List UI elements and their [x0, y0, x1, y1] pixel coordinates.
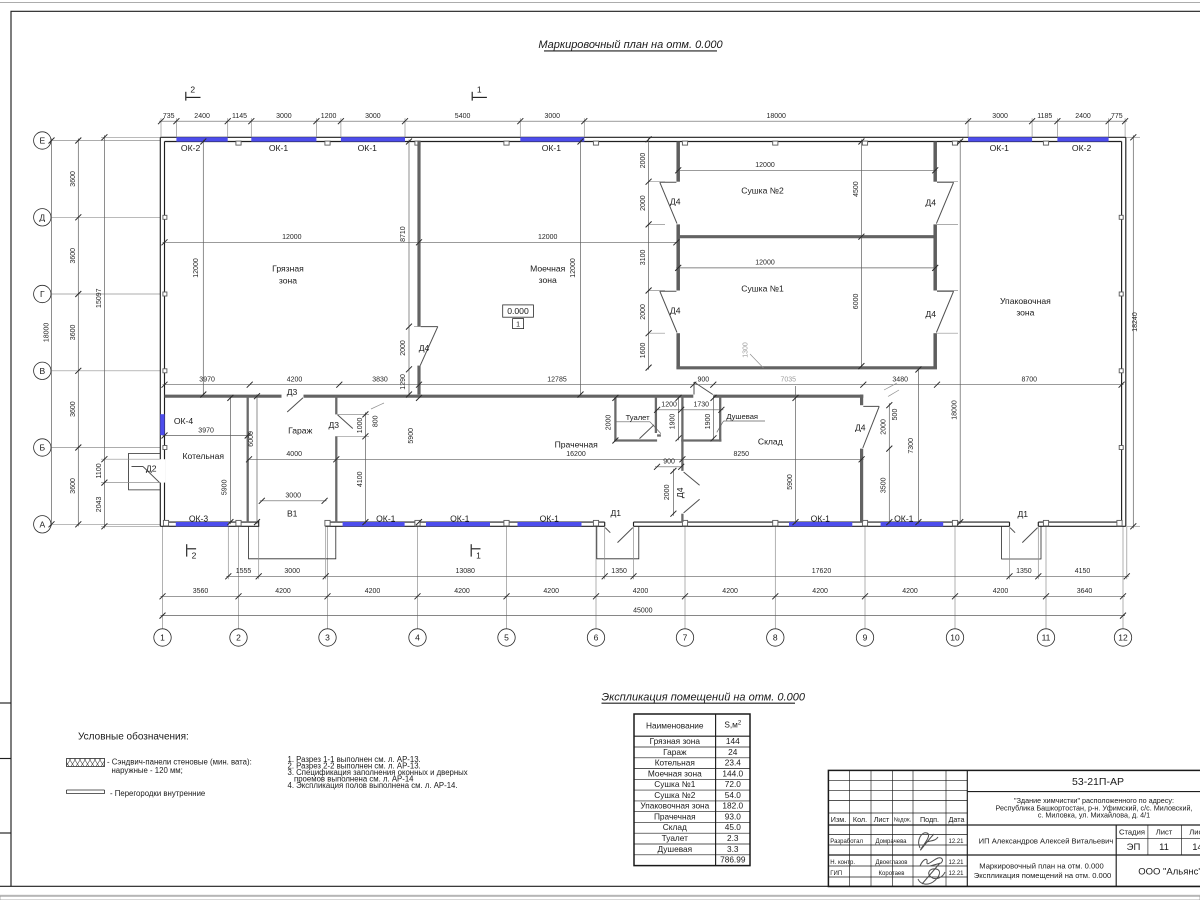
svg-text:182.0: 182.0: [722, 801, 743, 811]
svg-text:3830: 3830: [372, 377, 388, 384]
svg-text:Экспликация помещений на отм.: Экспликация помещений на отм. 0.000: [602, 692, 806, 704]
svg-text:Душевая: Душевая: [726, 412, 758, 421]
svg-text:2: 2: [192, 551, 197, 561]
svg-text:1100: 1100: [96, 463, 103, 478]
svg-text:Душевая: Душевая: [657, 844, 692, 854]
svg-text:4200: 4200: [812, 588, 828, 595]
svg-text:ОК-1: ОК-1: [894, 514, 914, 524]
svg-text:Подп.: Подп.: [920, 815, 939, 824]
svg-text:12.21: 12.21: [948, 860, 964, 866]
svg-text:3560: 3560: [193, 588, 209, 595]
svg-text:3100: 3100: [640, 250, 647, 266]
svg-text:ОК-4: ОК-4: [174, 416, 194, 426]
svg-text:Туалет: Туалет: [662, 833, 688, 843]
svg-text:Наименование: Наименование: [646, 721, 704, 731]
svg-text:ОК-1: ОК-1: [811, 514, 831, 524]
svg-text:144.0: 144.0: [722, 768, 743, 778]
svg-text:3970: 3970: [199, 377, 215, 384]
svg-text:2400: 2400: [194, 113, 210, 120]
svg-text:Д4: Д4: [925, 197, 936, 207]
svg-text:8700: 8700: [1022, 377, 1038, 384]
svg-text:6000: 6000: [248, 431, 255, 447]
svg-text:зона: зона: [539, 275, 557, 285]
svg-text:1: 1: [477, 85, 482, 95]
svg-text:Г: Г: [40, 289, 45, 299]
svg-text:8250: 8250: [734, 451, 750, 458]
svg-text:12000: 12000: [755, 162, 775, 169]
svg-text:4000: 4000: [286, 451, 302, 458]
svg-text:Д: Д: [39, 212, 45, 222]
svg-text:ГИП: ГИП: [830, 871, 842, 877]
svg-text:5900: 5900: [787, 474, 794, 490]
svg-text:ОК-1: ОК-1: [540, 514, 560, 524]
svg-text:Н. контр.: Н. контр.: [830, 860, 855, 866]
svg-text:4200: 4200: [287, 377, 303, 384]
svg-text:Лист: Лист: [874, 815, 890, 824]
svg-text:Разработал: Разработал: [830, 839, 863, 845]
svg-text:ИП Александров Алексей Виталье: ИП Александров Алексей Витальевич: [979, 836, 1114, 845]
svg-text:3640: 3640: [1077, 588, 1093, 595]
svg-text:зона: зона: [1016, 308, 1034, 318]
svg-text:9: 9: [863, 633, 868, 643]
svg-text:Коротаев: Коротаев: [879, 871, 905, 877]
svg-text:1350: 1350: [611, 568, 627, 575]
svg-text:Двоеглазов: Двоеглазов: [876, 860, 908, 866]
svg-text:1: 1: [516, 322, 520, 329]
svg-text:54.0: 54.0: [725, 790, 742, 800]
svg-text:93.0: 93.0: [725, 812, 742, 822]
svg-text:Д4: Д4: [670, 197, 681, 207]
svg-text:Д4: Д4: [670, 306, 681, 316]
svg-text:12000: 12000: [570, 258, 577, 278]
svg-text:Д4: Д4: [419, 343, 430, 353]
svg-text:1350: 1350: [1016, 568, 1032, 575]
svg-text:Д4: Д4: [675, 487, 685, 498]
svg-text:12000: 12000: [538, 234, 558, 241]
svg-text:11: 11: [1159, 842, 1169, 853]
svg-text:Дата: Дата: [949, 815, 965, 824]
svg-text:3000: 3000: [365, 113, 381, 120]
svg-text:5: 5: [504, 633, 509, 643]
svg-text:Д1: Д1: [1017, 509, 1028, 519]
svg-text:775: 775: [1111, 113, 1123, 120]
svg-text:16200: 16200: [566, 451, 586, 458]
svg-text:786.99: 786.99: [720, 855, 746, 865]
svg-text:- Перегородки внутренние: - Перегородки внутренние: [110, 789, 205, 798]
svg-text:Гараж: Гараж: [663, 747, 687, 757]
svg-text:Грязная зона: Грязная зона: [650, 736, 701, 746]
svg-text:2000: 2000: [640, 153, 647, 169]
svg-text:5900: 5900: [222, 479, 229, 495]
svg-text:1185: 1185: [1037, 113, 1052, 120]
svg-text:5400: 5400: [455, 113, 471, 120]
svg-text:Д4: Д4: [925, 309, 936, 319]
svg-text:12000: 12000: [755, 260, 775, 267]
svg-text:2043: 2043: [96, 497, 103, 513]
svg-text:6000: 6000: [853, 294, 860, 310]
svg-text:1555: 1555: [236, 568, 252, 575]
svg-text:Сушка №1: Сушка №1: [654, 779, 695, 789]
svg-text:1730: 1730: [694, 402, 710, 409]
svg-text:18000: 18000: [951, 400, 958, 420]
svg-text:2.3: 2.3: [727, 833, 739, 843]
svg-text:2: 2: [236, 633, 241, 643]
svg-text:53-21П-АР: 53-21П-АР: [1072, 776, 1124, 788]
svg-text:18240: 18240: [1132, 312, 1139, 332]
svg-text:7035: 7035: [781, 377, 797, 384]
svg-text:Экспликация помещений на отм.: Экспликация помещений на отм. 0.000: [974, 871, 1111, 880]
svg-text:Д4: Д4: [855, 422, 866, 432]
svg-text:Грязная: Грязная: [272, 263, 304, 273]
svg-text:Гараж: Гараж: [288, 426, 313, 436]
svg-text:0.000: 0.000: [507, 306, 529, 316]
svg-text:А: А: [39, 519, 45, 529]
svg-text:ОК-2: ОК-2: [181, 143, 201, 153]
svg-text:7300: 7300: [908, 438, 915, 454]
svg-text:8710: 8710: [400, 226, 407, 242]
svg-text:3600: 3600: [70, 401, 77, 417]
svg-text:3600: 3600: [70, 325, 77, 341]
svg-text:45000: 45000: [633, 607, 653, 614]
svg-text:ОК-1: ОК-1: [450, 514, 470, 524]
svg-text:3500: 3500: [881, 477, 888, 493]
svg-text:Котельная: Котельная: [655, 758, 695, 768]
svg-text:3600: 3600: [70, 478, 77, 494]
svg-text:Изм.: Изм.: [831, 815, 846, 824]
svg-text:13080: 13080: [455, 568, 475, 575]
svg-text:12000: 12000: [193, 258, 200, 278]
svg-text:Е: Е: [39, 136, 45, 146]
svg-text:№док.: №док.: [894, 816, 912, 823]
svg-text:4. Экспликация полов выполнена: 4. Экспликация полов выполнена см. л. АР…: [288, 781, 458, 790]
svg-text:4150: 4150: [1075, 568, 1091, 575]
svg-text:4200: 4200: [993, 588, 1009, 595]
svg-text:1: 1: [160, 633, 165, 643]
svg-text:Моечная зона: Моечная зона: [648, 768, 702, 778]
svg-text:5900: 5900: [408, 428, 415, 444]
svg-text:3000: 3000: [545, 113, 561, 120]
svg-text:10: 10: [950, 633, 960, 643]
svg-text:Сушка №1: Сушка №1: [741, 283, 784, 293]
svg-text:ОК-1: ОК-1: [358, 143, 378, 153]
svg-text:1900: 1900: [670, 414, 677, 430]
svg-text:12.21: 12.21: [948, 871, 964, 877]
svg-text:12785: 12785: [547, 377, 567, 384]
svg-text:ЭП: ЭП: [1127, 842, 1141, 853]
svg-text:Котельная: Котельная: [182, 451, 224, 461]
svg-text:12000: 12000: [282, 234, 302, 241]
svg-text:735: 735: [163, 113, 175, 120]
svg-text:4200: 4200: [722, 588, 738, 595]
svg-text:В1: В1: [287, 509, 298, 519]
svg-text:Лист: Лист: [1156, 827, 1173, 836]
svg-text:4200: 4200: [365, 588, 381, 595]
svg-text:45.0: 45.0: [725, 822, 742, 832]
svg-text:72.0: 72.0: [725, 779, 742, 789]
svg-text:18000: 18000: [766, 113, 786, 120]
svg-text:Кол.: Кол.: [853, 815, 867, 824]
svg-text:1200: 1200: [661, 402, 677, 409]
svg-text:144: 144: [726, 736, 740, 746]
svg-text:11: 11: [1042, 633, 1051, 643]
svg-text:наружные - 120 мм;: наружные - 120 мм;: [112, 766, 183, 775]
svg-text:Склад: Склад: [758, 437, 783, 447]
svg-text:1000: 1000: [357, 418, 364, 434]
svg-text:Сушка №2: Сушка №2: [654, 790, 695, 800]
svg-text:2000: 2000: [881, 419, 888, 435]
svg-text:23.4: 23.4: [725, 758, 742, 768]
svg-text:3000: 3000: [276, 113, 292, 120]
svg-text:ОК-1: ОК-1: [990, 143, 1010, 153]
svg-text:3480: 3480: [892, 377, 908, 384]
svg-text:с. Миловка, ул. Михайлова, д.: с. Миловка, ул. Михайлова, д. 4/1: [1038, 811, 1150, 820]
svg-text:15097: 15097: [96, 288, 103, 308]
svg-text:Д1: Д1: [610, 508, 621, 518]
svg-text:зона: зона: [279, 275, 297, 285]
svg-text:3000: 3000: [285, 493, 301, 500]
svg-text:Б: Б: [40, 443, 46, 453]
svg-text:900: 900: [663, 459, 675, 466]
svg-text:17620: 17620: [812, 568, 832, 575]
svg-text:3: 3: [325, 633, 330, 643]
svg-text:800: 800: [373, 415, 380, 427]
svg-text:4200: 4200: [543, 588, 559, 595]
svg-text:2000: 2000: [640, 195, 647, 211]
svg-text:18000: 18000: [43, 323, 50, 343]
svg-text:7: 7: [683, 633, 688, 643]
svg-text:900: 900: [697, 377, 709, 384]
svg-text:500: 500: [892, 409, 899, 421]
svg-text:В: В: [39, 366, 45, 376]
svg-text:Лист: Лист: [1189, 827, 1200, 836]
svg-text:Домрачева: Домрачева: [875, 839, 907, 845]
svg-text:8: 8: [773, 633, 778, 643]
svg-text:Д3: Д3: [287, 387, 298, 397]
svg-text:Склад: Склад: [663, 822, 687, 832]
svg-text:Моечная: Моечная: [530, 263, 566, 273]
svg-text:Сушка №2: Сушка №2: [741, 185, 784, 195]
svg-text:ОК-1: ОК-1: [376, 514, 396, 524]
svg-text:Маркировочный план на отм. 0.0: Маркировочный план на отм. 0.000: [538, 39, 723, 51]
svg-text:Условные обозначения:: Условные обозначения:: [78, 731, 189, 743]
svg-text:4100: 4100: [357, 471, 364, 487]
svg-text:1600: 1600: [640, 343, 647, 359]
svg-text:3000: 3000: [284, 568, 300, 575]
svg-text:Упаковочная зона: Упаковочная зона: [640, 801, 709, 811]
svg-text:Маркировочный план на отм. 0.0: Маркировочный план на отм. 0.000: [979, 862, 1103, 871]
svg-text:3970: 3970: [198, 427, 214, 434]
svg-text:2000: 2000: [400, 340, 407, 356]
svg-text:1900: 1900: [705, 414, 712, 430]
svg-text:4500: 4500: [853, 181, 860, 197]
svg-text:2: 2: [190, 85, 195, 95]
svg-text:3.3: 3.3: [727, 844, 739, 854]
svg-text:1: 1: [476, 551, 481, 561]
svg-text:4200: 4200: [454, 588, 470, 595]
svg-text:Стадия: Стадия: [1119, 827, 1145, 836]
svg-text:ОК-3: ОК-3: [189, 514, 209, 524]
svg-text:12: 12: [1118, 633, 1128, 643]
svg-text:2000: 2000: [664, 484, 671, 500]
svg-text:ООО "Альянс": ООО "Альянс": [1138, 866, 1200, 877]
svg-text:ОК-1: ОК-1: [269, 143, 289, 153]
svg-text:4200: 4200: [633, 588, 649, 595]
svg-text:1145: 1145: [232, 113, 247, 120]
svg-text:12.21: 12.21: [948, 839, 964, 845]
svg-text:Прачечная: Прачечная: [654, 812, 696, 822]
svg-text:24: 24: [728, 747, 738, 757]
svg-text:4: 4: [415, 633, 420, 643]
svg-text:Прачечная: Прачечная: [555, 440, 599, 450]
svg-text:1300: 1300: [743, 342, 750, 358]
svg-text:Д2: Д2: [146, 463, 157, 473]
svg-text:6: 6: [594, 633, 599, 643]
svg-text:4200: 4200: [902, 588, 918, 595]
svg-text:2000: 2000: [640, 304, 647, 320]
svg-text:2400: 2400: [1075, 113, 1091, 120]
svg-text:4200: 4200: [275, 588, 291, 595]
svg-text:2000: 2000: [606, 415, 613, 431]
svg-text:Д3: Д3: [328, 420, 339, 430]
svg-text:Упаковочная: Упаковочная: [1000, 296, 1051, 306]
svg-text:3600: 3600: [70, 171, 77, 187]
svg-text:3600: 3600: [70, 248, 77, 264]
svg-text:ОК-1: ОК-1: [542, 143, 562, 153]
svg-text:3000: 3000: [992, 113, 1008, 120]
svg-text:Туалет: Туалет: [626, 413, 651, 422]
svg-text:ОК-2: ОК-2: [1072, 143, 1092, 153]
svg-text:14: 14: [1192, 842, 1200, 853]
svg-text:1200: 1200: [321, 113, 337, 120]
svg-text:1290: 1290: [400, 374, 407, 390]
